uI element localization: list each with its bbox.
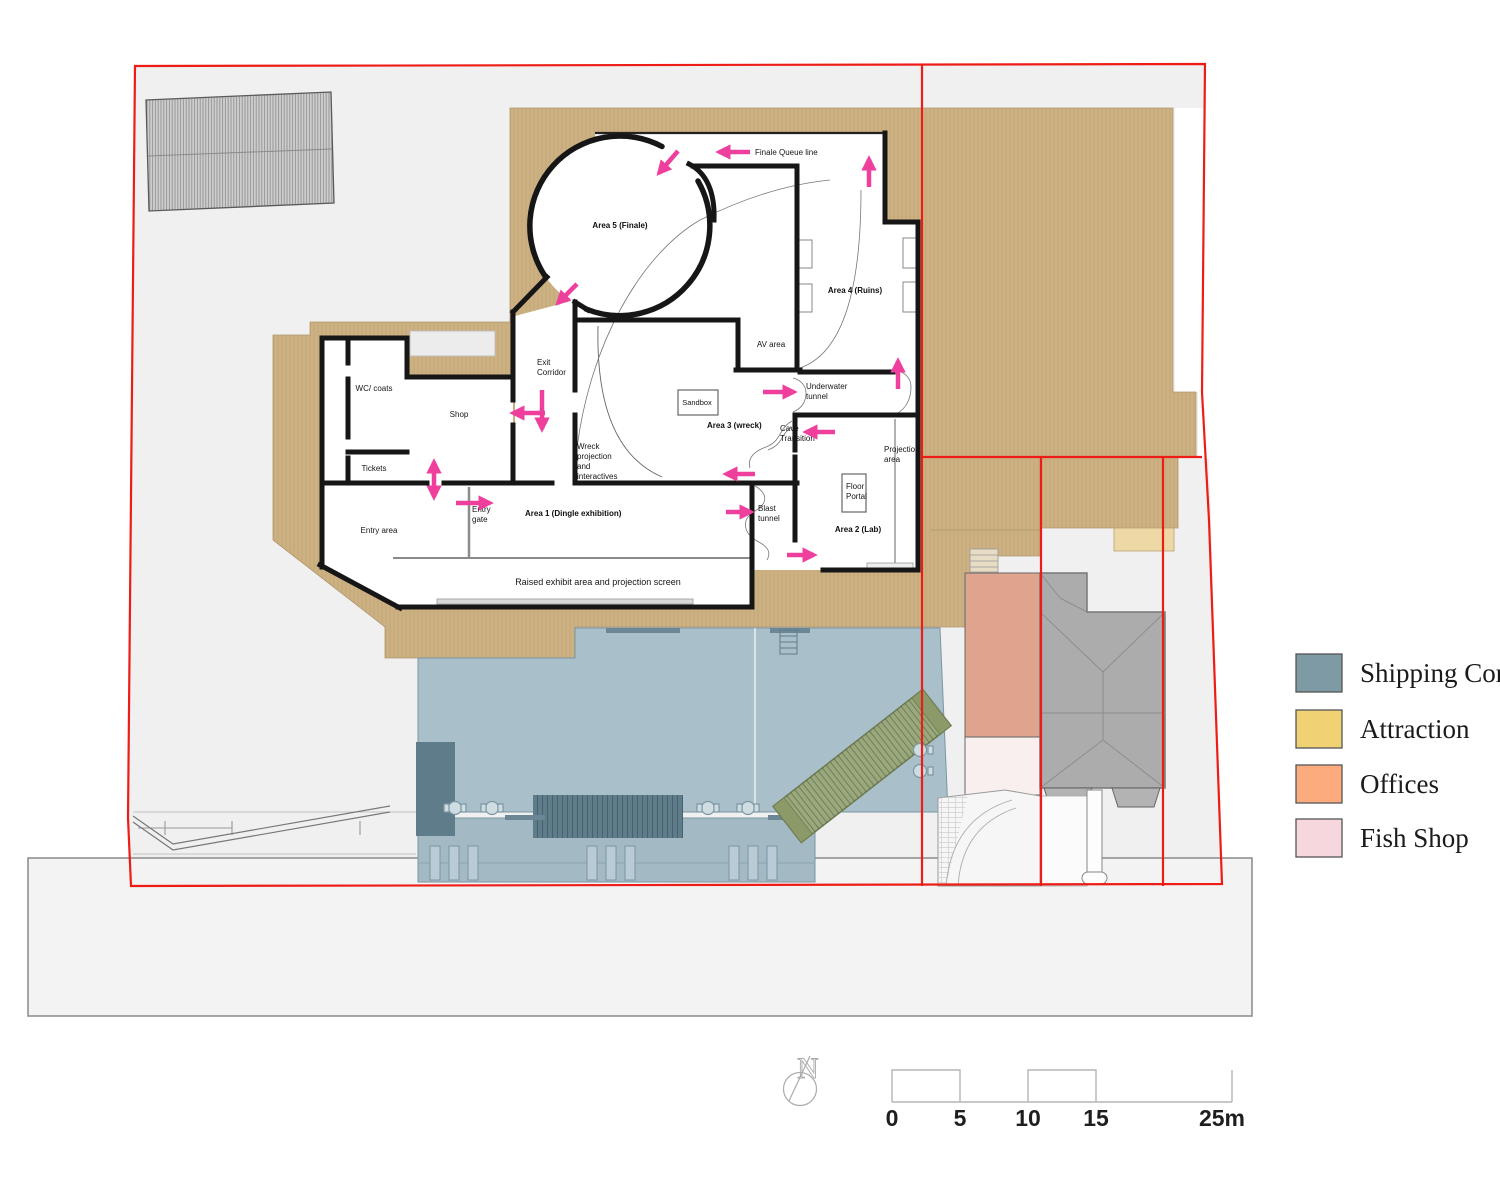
label-sandbox: Sandbox [682, 398, 712, 407]
legend: Shipping Container Attraction Offices Fi… [1296, 654, 1500, 857]
legend-label-fishshop: Fish Shop [1360, 823, 1469, 853]
north-label: N [797, 1052, 819, 1085]
legend-swatch-fishshop [1296, 819, 1342, 857]
legend-swatch-offices [1296, 765, 1342, 803]
legend-label-attraction: Attraction [1360, 714, 1470, 744]
label-area3: Area 3 (wreck) [707, 421, 762, 430]
street-works [938, 790, 1107, 886]
scale-bar: 0 5 10 15 25m [886, 1070, 1245, 1131]
offices-building [965, 573, 1040, 737]
label-area2: Area 2 (Lab) [835, 525, 882, 534]
jetty-pole [1087, 790, 1102, 878]
label-floor-portal: FloorPortal [846, 482, 867, 501]
legend-label-shipping: Shipping Container [1360, 658, 1500, 688]
scale-tick-0: 0 [886, 1105, 899, 1131]
label-entry-area: Entry area [361, 526, 398, 535]
label-area1: Area 1 (Dingle exhibition) [525, 509, 622, 518]
label-area5: Area 5 (Finale) [592, 221, 647, 230]
scale-tick-10: 10 [1015, 1105, 1041, 1131]
scale-tick-5: 5 [954, 1105, 967, 1131]
scale-tick-15: 15 [1083, 1105, 1109, 1131]
dark-deck-block [416, 742, 455, 836]
existing-shed-building [146, 92, 334, 211]
label-finale-queue: Finale Queue line [755, 148, 818, 157]
label-av: AV area [757, 340, 786, 349]
legend-swatch-attraction [1296, 710, 1342, 748]
terrace-inset [410, 331, 495, 356]
scale-tick-25: 25m [1199, 1105, 1245, 1131]
external-stairs [970, 549, 998, 576]
label-shop: Shop [450, 410, 469, 419]
label-tickets: Tickets [361, 464, 386, 473]
legend-label-offices: Offices [1360, 769, 1439, 799]
central-steps [533, 795, 683, 838]
bay-window [1112, 788, 1160, 807]
legend-swatch-shipping [1296, 654, 1342, 692]
label-wc: WC/ coats [356, 384, 393, 393]
label-area4: Area 4 (Ruins) [828, 286, 883, 295]
north-arrow: N [784, 1052, 819, 1106]
site-plan-canvas: Area 5 (Finale) Area 4 (Ruins) Area 3 (w… [0, 0, 1500, 1180]
label-raised: Raised exhibit area and projection scree… [515, 577, 681, 587]
fish-shop-building [965, 737, 1040, 795]
projection-screen-strip [437, 599, 693, 604]
attraction-pale-strip [1114, 528, 1174, 551]
